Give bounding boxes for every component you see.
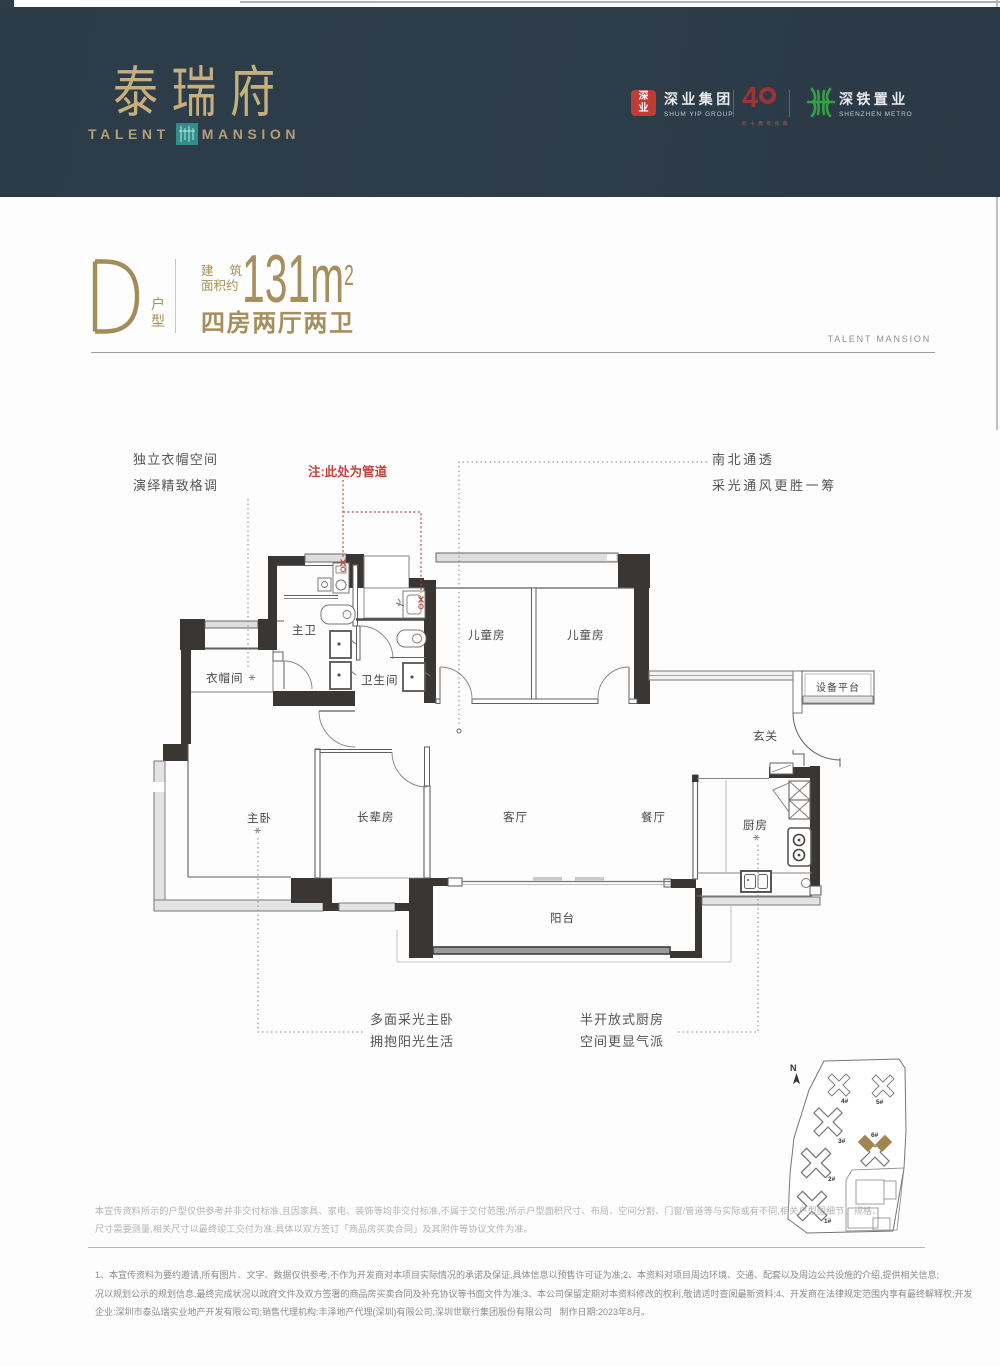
svg-text:主卫: 主卫 — [292, 624, 317, 637]
svg-text:衣帽间: 衣帽间 — [206, 671, 244, 685]
svg-text:主卧: 主卧 — [247, 812, 272, 825]
svg-text:儿童房: 儿童房 — [468, 628, 506, 642]
svg-text:5#: 5# — [876, 1099, 884, 1106]
svg-text:4#: 4# — [841, 1098, 849, 1105]
svg-text:客厅: 客厅 — [503, 810, 528, 824]
svg-text:儿童房: 儿童房 — [567, 628, 605, 642]
svg-text:N: N — [790, 1063, 797, 1073]
svg-text:2#: 2# — [828, 1176, 836, 1183]
svg-text:6#: 6# — [871, 1132, 879, 1139]
svg-text:长辈房: 长辈房 — [357, 810, 395, 824]
svg-text:玄关: 玄关 — [753, 729, 778, 743]
svg-text:卫生间: 卫生间 — [361, 673, 399, 687]
svg-text:设备平台: 设备平台 — [816, 681, 860, 694]
svg-text:餐厅: 餐厅 — [641, 810, 666, 824]
svg-text:3#: 3# — [838, 1138, 846, 1145]
svg-text:厨房: 厨房 — [743, 819, 768, 832]
svg-text:阳台: 阳台 — [550, 911, 575, 925]
